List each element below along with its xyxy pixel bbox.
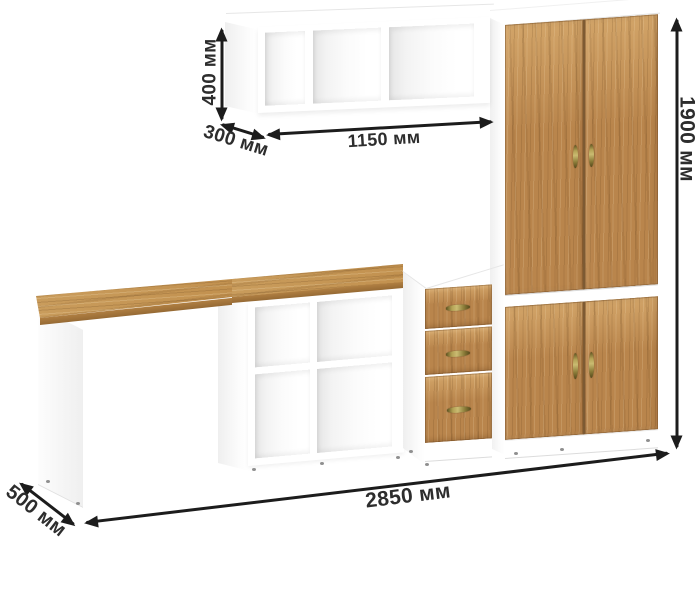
cube-shelf-compartment	[317, 295, 392, 362]
furniture-foot	[514, 452, 518, 455]
cube-shelf-front	[248, 288, 404, 466]
furniture-foot	[320, 462, 324, 465]
furniture-dimension-diagram: 400 мм 300 мм 1150 мм 1900 мм 2850 мм 50…	[0, 0, 700, 606]
wall-shelf-compartment	[389, 24, 474, 101]
wall-shelf-side-panel	[225, 22, 258, 114]
wardrobe-side-panel	[490, 18, 505, 455]
dim-label-shelf-height: 400 мм	[201, 39, 220, 106]
dim-arrow-wardrobe-height	[676, 20, 679, 448]
wardrobe-upper-door-right	[585, 14, 658, 289]
wall-shelf-front	[258, 17, 490, 113]
wall-shelf-compartment	[313, 28, 381, 104]
wardrobe-upper-door-left	[505, 20, 583, 295]
furniture-foot	[76, 502, 80, 505]
furniture-foot	[46, 480, 50, 483]
cube-shelf-compartment	[317, 362, 392, 453]
furniture-foot	[425, 463, 429, 466]
furniture-foot	[409, 450, 413, 453]
wall-shelf-compartment	[265, 31, 305, 106]
wardrobe-lower-door-right	[585, 296, 658, 434]
drawer-unit-base	[425, 438, 492, 462]
cube-shelf-compartment	[255, 303, 310, 368]
wardrobe-upper-doors	[505, 14, 658, 295]
dim-label-total-width: 2850 мм	[364, 480, 452, 511]
furniture-foot	[252, 468, 256, 471]
drawer-unit-side-panel	[403, 272, 425, 465]
dim-arrow-shelf-height	[221, 30, 224, 120]
drawer-unit-front	[425, 284, 492, 461]
furniture-foot	[396, 456, 400, 459]
dim-label-shelf-width: 1150 мм	[347, 128, 421, 150]
wall-shelf-top-edge	[226, 4, 494, 14]
cube-shelf-side-panel	[218, 297, 248, 470]
wardrobe-lower-doors	[505, 296, 658, 440]
dim-label-wardrobe-height: 1900 мм	[677, 96, 698, 182]
furniture-foot	[560, 448, 564, 451]
wardrobe-front	[505, 14, 658, 457]
desk-left-leg	[38, 307, 83, 508]
cube-shelf-compartment	[255, 370, 310, 459]
wardrobe-lower-door-left	[505, 302, 583, 440]
furniture-foot	[646, 439, 650, 442]
